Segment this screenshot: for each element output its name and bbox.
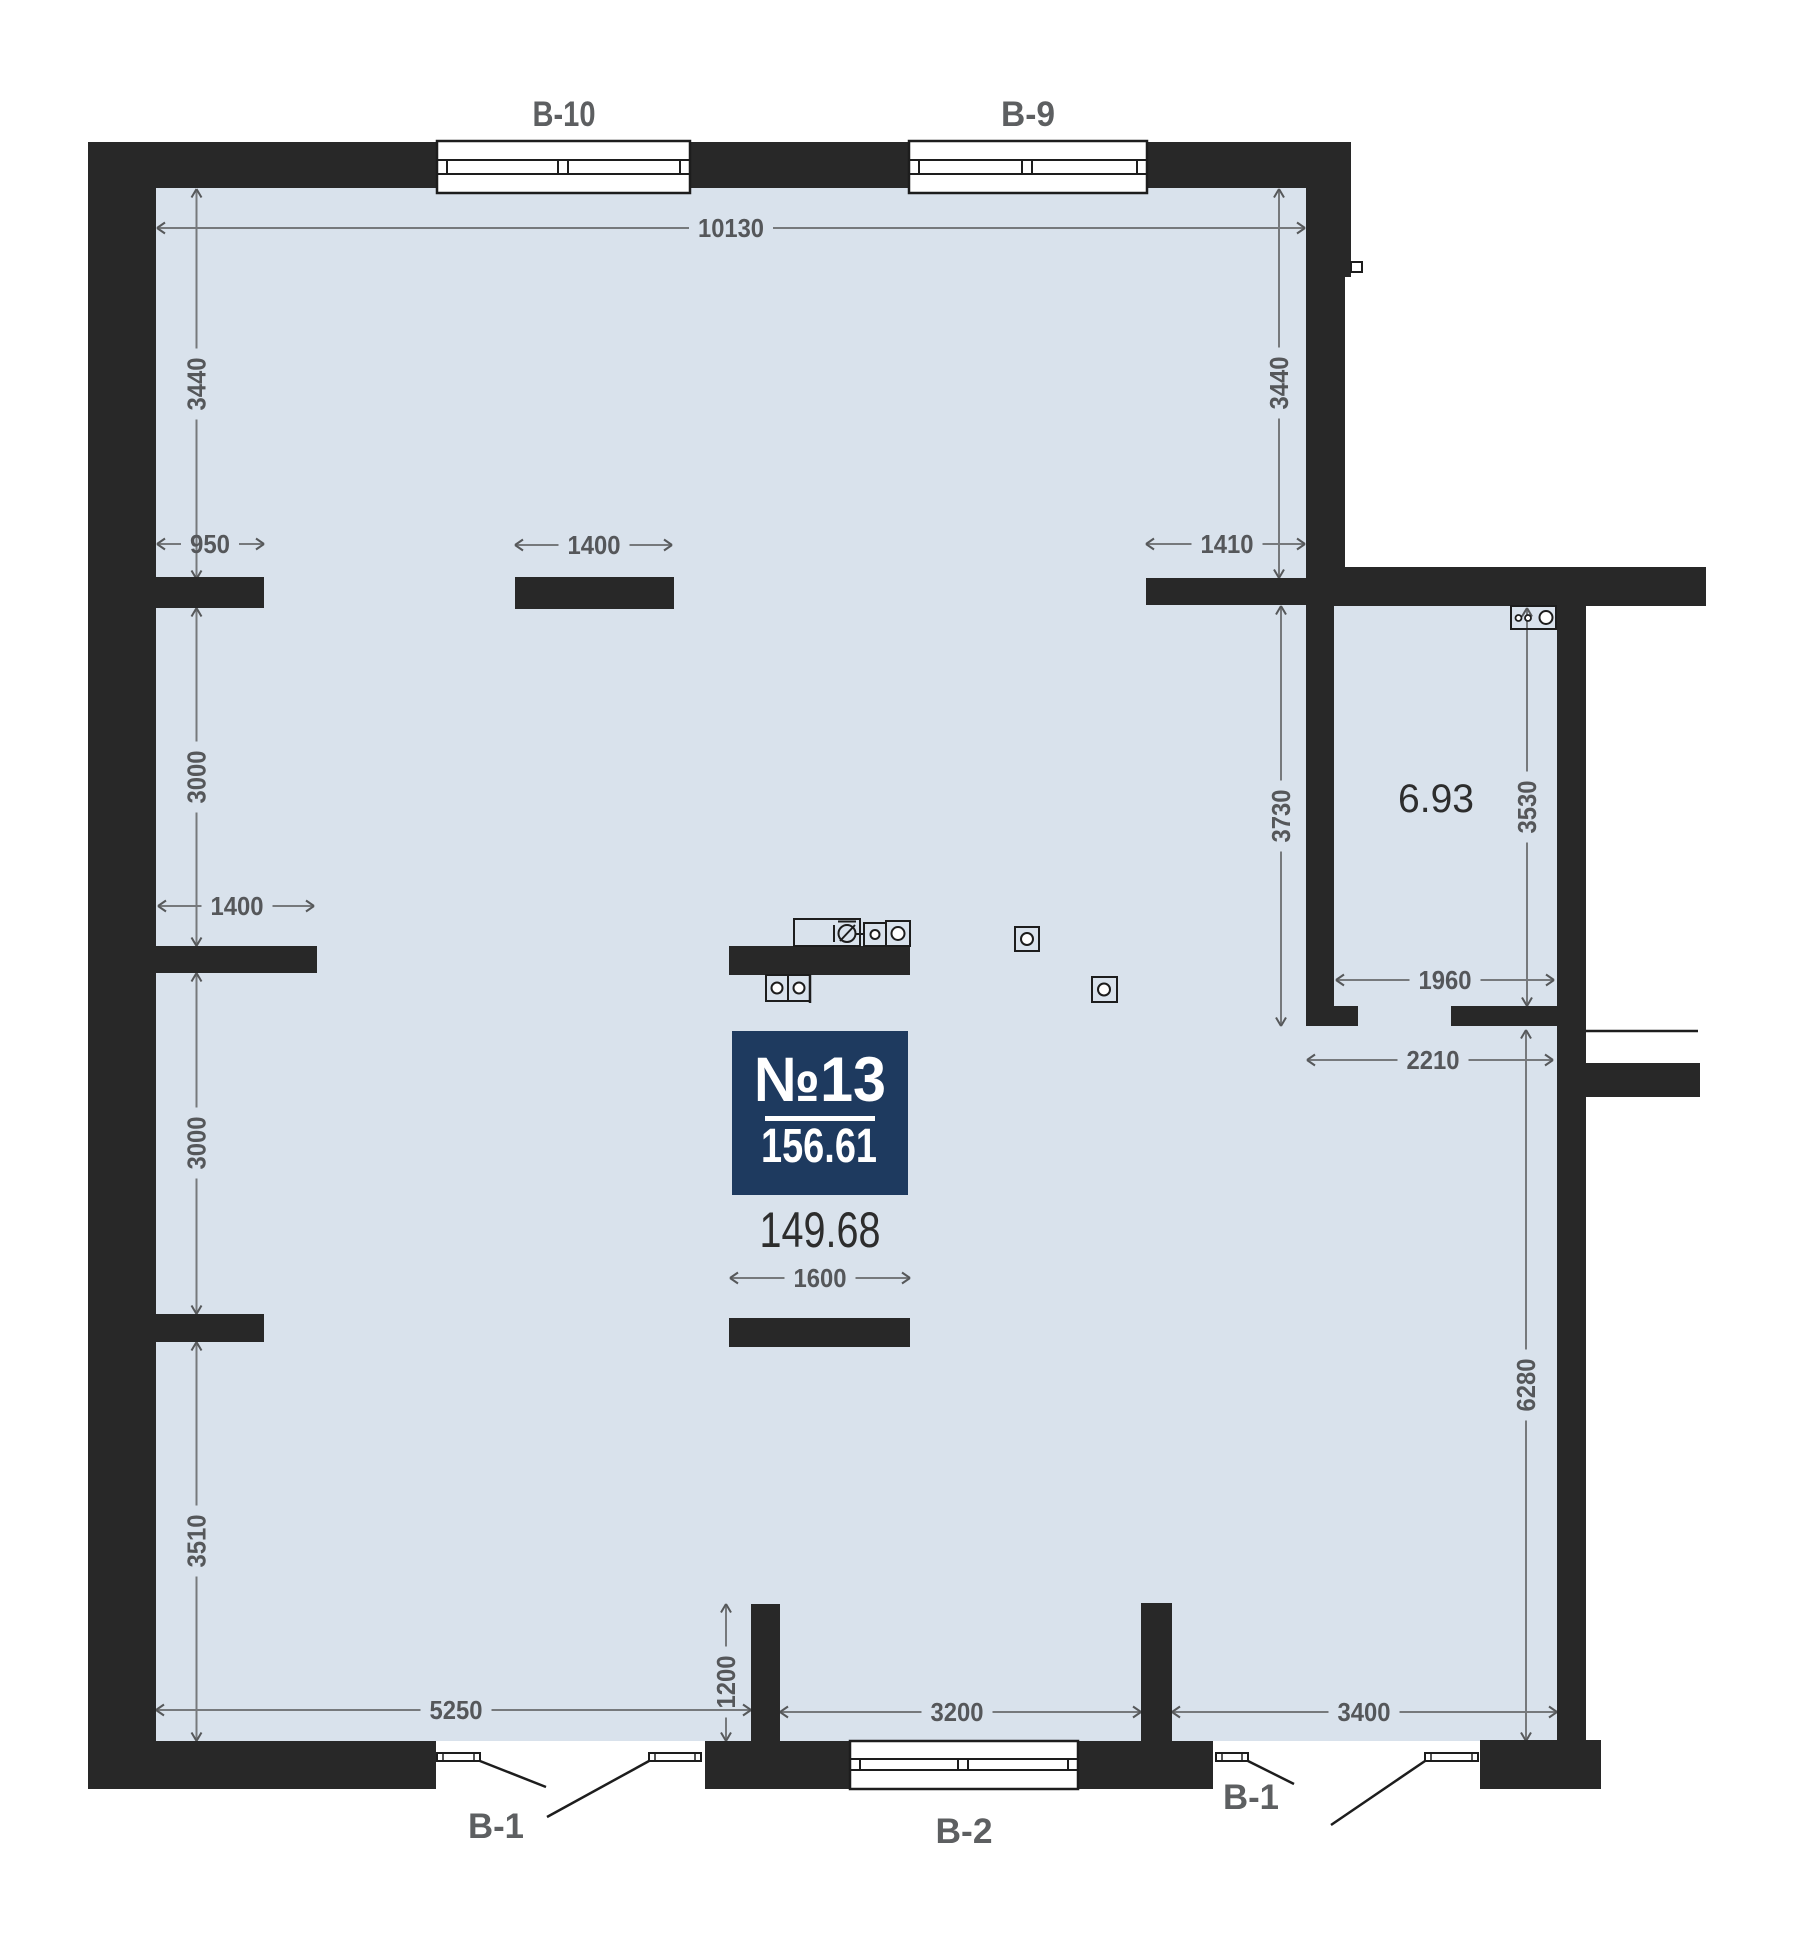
svg-text:3440: 3440 xyxy=(182,358,212,411)
svg-text:6280: 6280 xyxy=(1511,1359,1541,1412)
svg-text:3510: 3510 xyxy=(182,1515,212,1568)
svg-text:В-9: В-9 xyxy=(1001,95,1055,134)
svg-text:В-2: В-2 xyxy=(936,1812,993,1851)
svg-text:В-10: В-10 xyxy=(533,95,596,134)
svg-text:156.61: 156.61 xyxy=(761,1120,877,1173)
svg-text:1400: 1400 xyxy=(211,891,264,921)
svg-text:10130: 10130 xyxy=(698,213,764,243)
svg-text:3440: 3440 xyxy=(1264,357,1294,410)
svg-text:1200: 1200 xyxy=(711,1656,741,1709)
svg-text:3400: 3400 xyxy=(1338,1697,1391,1727)
svg-text:3200: 3200 xyxy=(931,1697,984,1727)
svg-text:№13: №13 xyxy=(754,1045,886,1115)
svg-text:149.68: 149.68 xyxy=(760,1202,881,1258)
svg-text:5250: 5250 xyxy=(430,1695,483,1725)
svg-text:В-1: В-1 xyxy=(468,1807,524,1846)
svg-text:1600: 1600 xyxy=(794,1263,847,1293)
svg-text:В-1: В-1 xyxy=(1223,1778,1279,1817)
svg-text:3530: 3530 xyxy=(1512,781,1542,834)
svg-text:3730: 3730 xyxy=(1266,790,1296,843)
svg-text:1400: 1400 xyxy=(568,530,621,560)
svg-text:3000: 3000 xyxy=(182,751,212,804)
svg-text:950: 950 xyxy=(190,529,230,559)
svg-text:2210: 2210 xyxy=(1407,1045,1460,1075)
svg-text:6.93: 6.93 xyxy=(1398,777,1474,821)
svg-text:3000: 3000 xyxy=(182,1117,212,1170)
svg-text:1410: 1410 xyxy=(1201,529,1254,559)
svg-text:1960: 1960 xyxy=(1419,965,1472,995)
